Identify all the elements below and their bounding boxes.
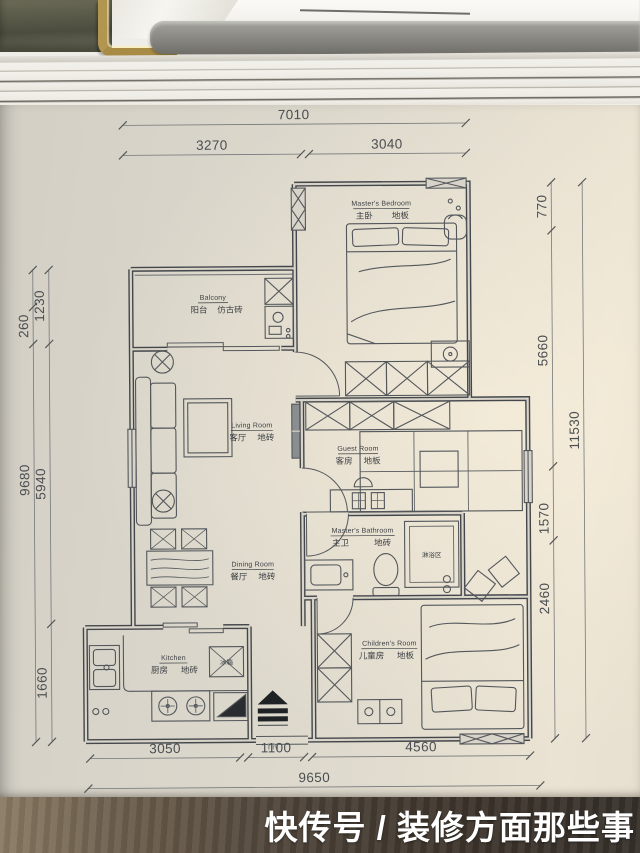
side-table-lamp — [152, 490, 174, 512]
dim-left-outer-small-value: 260 — [16, 314, 31, 338]
door-children-room — [317, 598, 353, 634]
wardrobe-guest — [306, 401, 450, 430]
watermark-bar: 快传号 / 装修方面那些事 — [0, 797, 640, 853]
label-balcony-zh: 阳台 — [190, 305, 207, 315]
label-balcony-en: Balcony — [200, 295, 227, 302]
window-guest-right — [524, 451, 532, 503]
dim-left-inner3-value: 1660 — [35, 667, 50, 699]
label-master-bath-zh: 主卫 — [332, 538, 350, 548]
column-master-left — [291, 188, 305, 230]
label-kitchen-en: Kitchen — [161, 655, 186, 662]
label-living-zh: 客厅 — [229, 433, 247, 443]
dim-left-outer-total-value: 9680 — [17, 464, 32, 496]
dim-right-inner2-value: 5660 — [535, 335, 550, 367]
dim-right-inner — [547, 178, 559, 742]
dim-top-seg1-value: 3270 — [196, 138, 228, 153]
label-living-en: Living Room — [231, 422, 272, 429]
dim-bottom-total-value: 9650 — [298, 770, 330, 785]
label-balcony-floor: 仿古砖 — [217, 305, 243, 315]
label-guest-floor: 地板 — [364, 456, 382, 466]
window-master-top — [426, 178, 466, 188]
label-children-floor: 地板 — [397, 650, 415, 660]
watermark-text: 快传号 / 装修方面那些事 — [264, 801, 640, 849]
label-dining-floor: 地砖 — [258, 571, 276, 581]
label-guest-en: Guest Room — [337, 446, 378, 453]
entrance-arrow — [258, 690, 288, 725]
dim-left-inner1-value: 1230 — [32, 290, 47, 322]
dim-right-outer — [578, 178, 590, 742]
toilet — [373, 553, 399, 595]
label-master-bedroom-floor: 地板 — [392, 210, 410, 220]
bed-children — [421, 605, 524, 730]
balcony-sink — [265, 306, 293, 338]
label-children-zh: 儿童房 — [359, 651, 385, 661]
walls — [82, 183, 530, 742]
bath-vanity — [305, 560, 353, 590]
label-shower-area: 淋浴区 — [422, 550, 442, 559]
dim-top-segments — [119, 149, 470, 159]
stove — [152, 691, 210, 721]
dim-right-inner3-value: 1570 — [536, 503, 551, 535]
label-master-bath-floor: 地砖 — [374, 538, 392, 548]
decor-dot — [448, 199, 452, 203]
dimensions — [28, 118, 591, 793]
decor-dot — [456, 206, 460, 210]
label-fridge: 冰箱 — [220, 658, 234, 667]
dim-right-outer-total-value: 11530 — [567, 411, 582, 450]
label-living-floor: 地砖 — [257, 432, 275, 442]
door-master-bathroom — [306, 514, 348, 556]
dim-right-inner1-value: 770 — [534, 195, 549, 219]
label-master-bedroom-en: Master's Bedroom — [351, 200, 411, 207]
label-kitchen-zh: 厨房 — [151, 665, 168, 675]
dim-bottom-seg3-value: 4560 — [405, 739, 437, 754]
label-children-en: Children's Room — [362, 640, 417, 647]
coffee-table — [184, 399, 232, 457]
tv-panel — [292, 404, 300, 458]
dim-bottom-seg2-value: 1100 — [261, 740, 292, 755]
dim-top-seg2-value: 3040 — [371, 136, 403, 151]
kitchen-sink — [89, 645, 119, 689]
door-master-bedroom — [295, 352, 339, 396]
slider-balcony — [167, 342, 279, 351]
windows-and-columns — [126, 178, 534, 747]
slider-kitchen — [163, 623, 223, 633]
label-master-bath-en: Master's Bathroom — [332, 527, 394, 534]
drain — [93, 709, 99, 715]
bed-master — [346, 223, 457, 344]
floorplan-drawing: Master's Bedroom 主卧 地板 Balcony 阳台 仿古砖 Li… — [0, 0, 640, 853]
dresser-master — [431, 341, 469, 367]
corner-cabinet — [214, 693, 248, 721]
dining-table — [147, 551, 213, 585]
label-kitchen-floor: 地砖 — [181, 665, 199, 675]
drain — [443, 576, 450, 583]
drain — [103, 708, 109, 714]
guest-chair — [354, 478, 372, 487]
wardrobe-master — [345, 361, 469, 396]
side-table-lamp — [151, 351, 173, 373]
dim-bottom-seg1-value: 3050 — [149, 741, 181, 756]
dim-top-total-value: 7010 — [278, 107, 310, 122]
label-master-bedroom-zh: 主卧 — [356, 211, 374, 221]
sofa — [135, 377, 176, 525]
label-dining-zh: 餐厅 — [230, 572, 248, 582]
window-children-bottom — [460, 734, 524, 744]
dim-right-inner4-value: 2460 — [537, 583, 552, 615]
dresser-children — [358, 699, 402, 723]
furniture — [86, 199, 524, 732]
label-dining-en: Dining Room — [231, 561, 274, 568]
chair-master — [444, 215, 466, 239]
dim-left-inner2-value: 5940 — [33, 468, 48, 500]
window-living-left — [128, 429, 136, 487]
photographed-floorplan-page: Master's Bedroom 主卧 地板 Balcony 阳台 仿古砖 Li… — [0, 0, 640, 853]
washing-machine — [265, 278, 293, 304]
wardrobe-children — [317, 634, 351, 702]
label-guest-zh: 客房 — [336, 456, 353, 466]
